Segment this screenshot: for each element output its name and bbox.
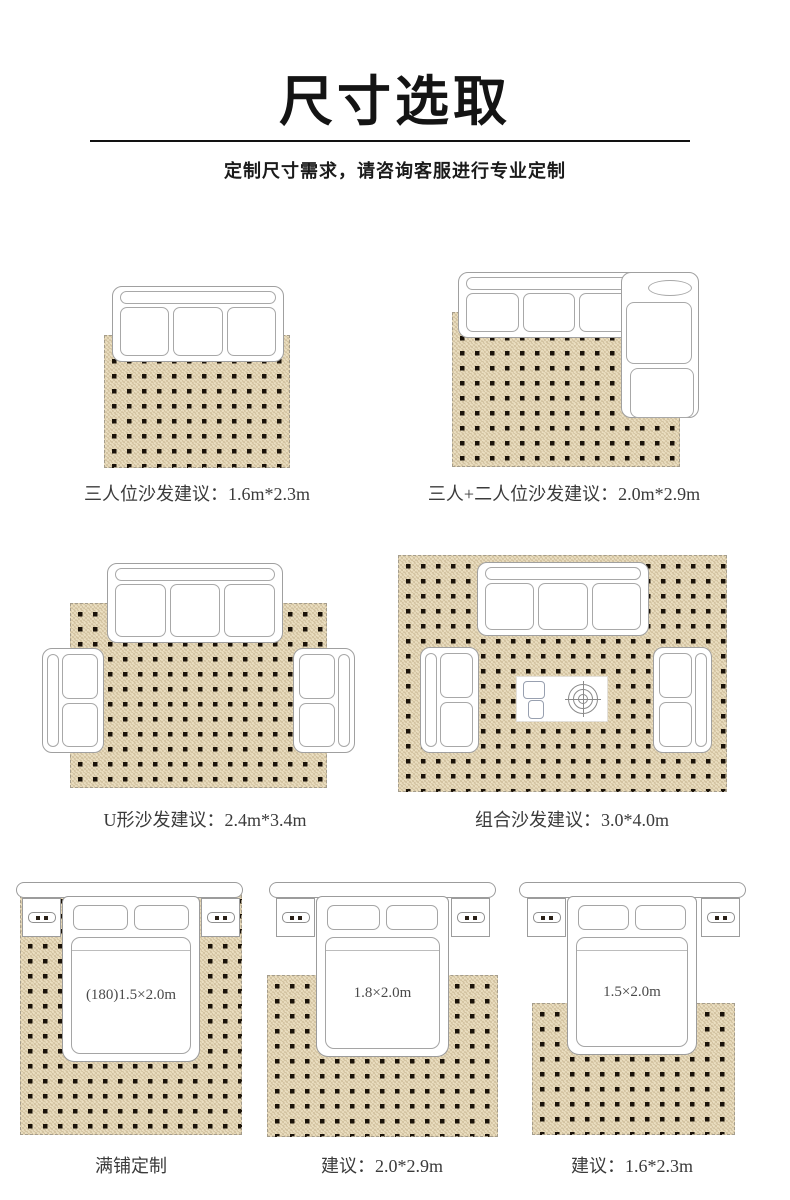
sofa-back-rail <box>466 277 632 290</box>
sofa-back-rail <box>695 653 707 747</box>
u-set-left-sofa <box>42 648 104 753</box>
pillow <box>134 905 189 930</box>
sofa-back-rail <box>338 654 350 747</box>
sofa-cushion <box>62 703 98 748</box>
nightstand <box>451 898 490 937</box>
blanket: 1.5×2.0m <box>576 937 688 1047</box>
blanket: 1.8×2.0m <box>325 937 440 1049</box>
sofa-cushion <box>485 583 534 630</box>
l-sofa-three-seat-part <box>458 272 640 338</box>
sofa-cushion <box>299 703 335 748</box>
caption-three-seat: 三人位沙发建议：1.6m*2.3m <box>57 480 337 506</box>
sofa-cushion <box>592 583 641 630</box>
size-guide-infographic: 尺寸选取 定制尺寸需求，请咨询客服进行专业定制 三人位沙发建议：1.6m*2.3… <box>0 0 790 1200</box>
chaise-cushion <box>626 302 692 364</box>
l-sofa-chaise-part <box>621 272 699 418</box>
table-tray-icon <box>528 700 544 719</box>
blanket: (180)1.5×2.0m <box>71 937 191 1054</box>
sofa-cushion <box>173 307 222 356</box>
caption-bed-full: 满铺定制 <box>31 1152 231 1178</box>
drawer-handle-icon <box>282 912 310 923</box>
bed-15: 1.5×2.0m <box>567 896 697 1055</box>
pillow <box>327 905 380 930</box>
sofa-cushion <box>120 307 169 356</box>
bed-size-text: 1.5×2.0m <box>603 984 661 1001</box>
bed-size-text: (180)1.5×2.0m <box>86 987 176 1004</box>
caption-l-shape: 三人+二人位沙发建议：2.0m*2.9m <box>418 480 710 506</box>
bed-180: (180)1.5×2.0m <box>62 896 200 1062</box>
sofa-cushion <box>659 653 692 698</box>
caption-bed-18: 建议：2.0*2.9m <box>282 1152 482 1178</box>
coffee-table <box>516 676 608 722</box>
pillow <box>386 905 439 930</box>
teacup-top-icon <box>568 684 598 714</box>
bed-size-text: 1.8×2.0m <box>354 985 412 1002</box>
bed-18: 1.8×2.0m <box>316 896 449 1057</box>
title-underline <box>90 140 690 142</box>
caption-bed-15: 建议：1.6*2.3m <box>532 1152 732 1178</box>
sofa-cushion <box>62 654 98 699</box>
sofa-cushion <box>466 293 519 332</box>
drawer-handle-icon <box>207 912 235 923</box>
page-subtitle: 定制尺寸需求，请咨询客服进行专业定制 <box>0 157 790 183</box>
sofa-back-rail <box>120 291 276 304</box>
page-title: 尺寸选取 <box>0 74 790 131</box>
pillow <box>635 905 686 930</box>
drawer-handle-icon <box>707 912 735 923</box>
sofa-cushion <box>659 702 692 747</box>
caption-combo: 组合沙发建议：3.0*4.0m <box>427 806 717 832</box>
drawer-handle-icon <box>28 912 56 923</box>
sofa-cushion <box>538 583 587 630</box>
chaise-cushion <box>630 368 694 418</box>
sofa-cushion <box>440 653 473 698</box>
sofa-cushion <box>115 584 166 637</box>
pillow <box>73 905 128 930</box>
nightstand <box>527 898 566 937</box>
sofa-back-rail <box>485 567 641 580</box>
sofa-back-rail <box>115 568 275 581</box>
sofa-cushion <box>523 293 576 332</box>
sofa-cushion <box>224 584 275 637</box>
nightstand <box>22 898 61 937</box>
drawer-handle-icon <box>457 912 485 923</box>
sofa-cushion <box>170 584 221 637</box>
sofa-cushion <box>227 307 276 356</box>
combo-top-sofa <box>477 562 649 636</box>
u-set-top-sofa <box>107 563 283 643</box>
table-tray-icon <box>523 681 545 699</box>
nightstand <box>701 898 740 937</box>
combo-left-chair <box>420 647 479 753</box>
nightstand <box>201 898 240 937</box>
sofa-back-rail <box>425 653 437 747</box>
caption-u-shape: U形沙发建议：2.4m*3.4m <box>60 806 350 832</box>
sofa-cushion <box>299 654 335 699</box>
nightstand <box>276 898 315 937</box>
chaise-pillow <box>648 280 692 296</box>
sofa-back-rail <box>47 654 59 747</box>
u-set-right-sofa <box>293 648 355 753</box>
pillow <box>578 905 629 930</box>
combo-right-chair <box>653 647 712 753</box>
drawer-handle-icon <box>533 912 561 923</box>
three-seat-sofa <box>112 286 284 362</box>
sofa-cushion <box>440 702 473 747</box>
